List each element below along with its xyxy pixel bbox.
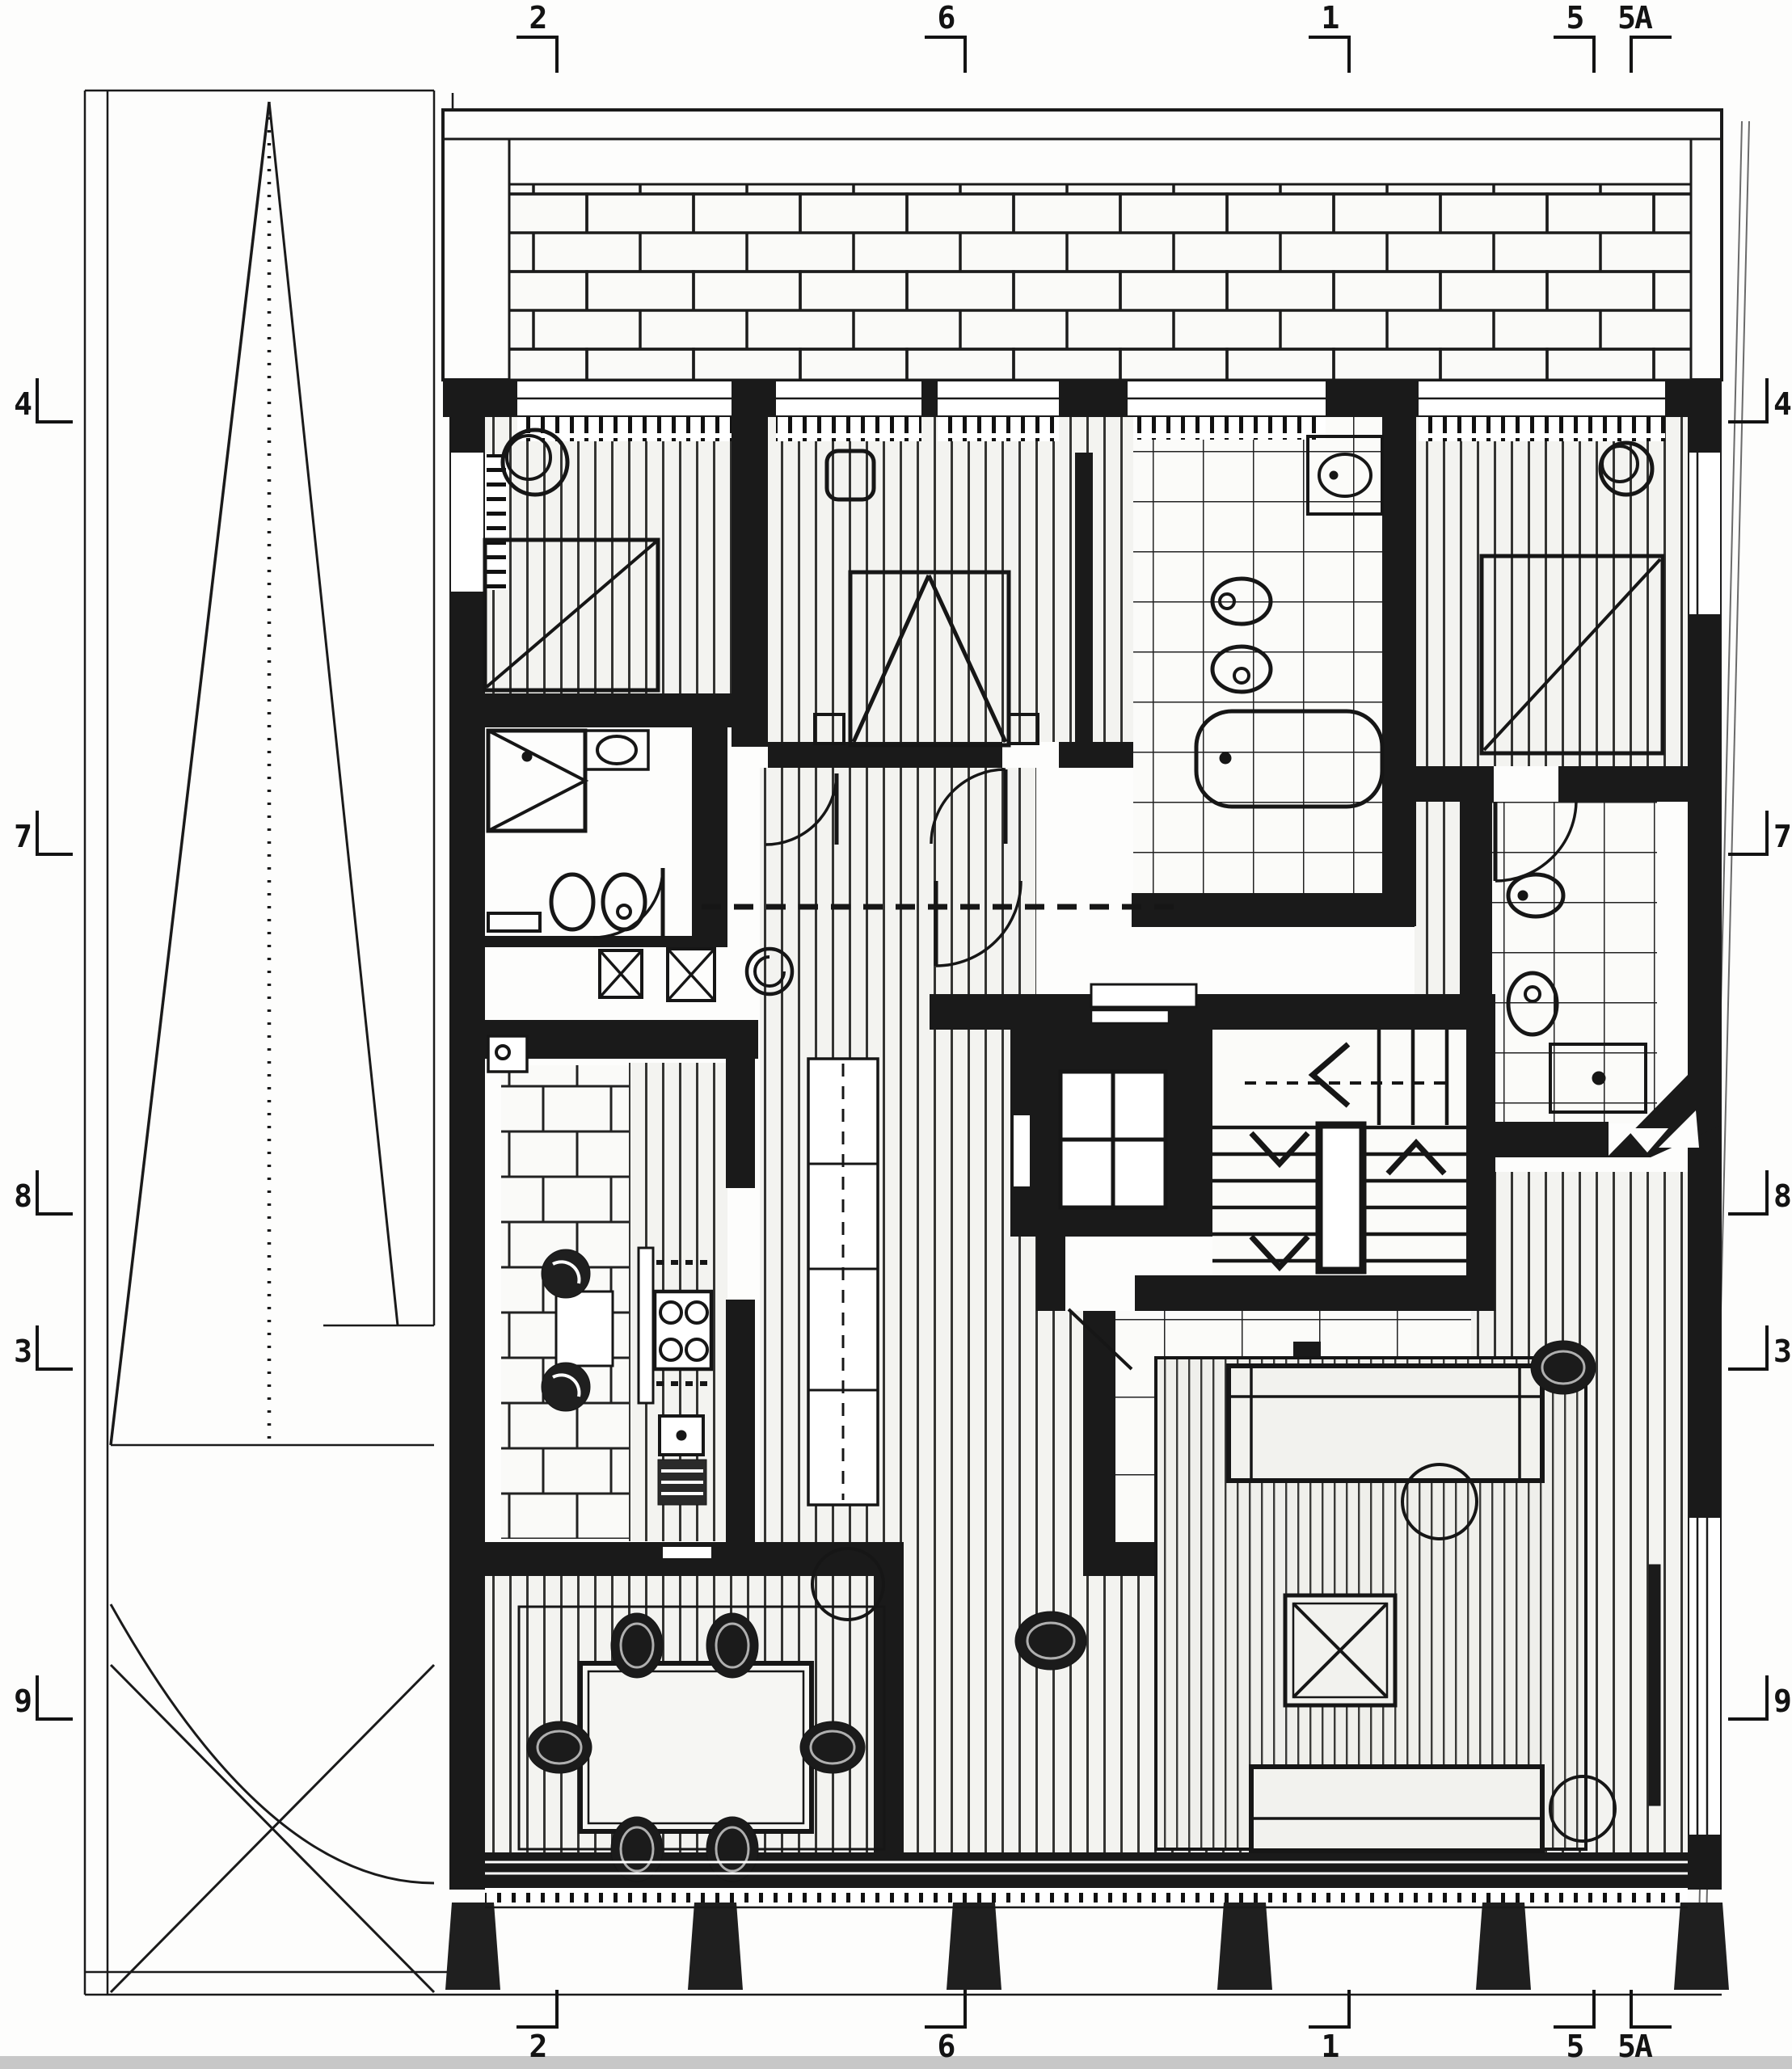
dining-table-icon — [580, 1663, 812, 1831]
grid-marker-bottom-2: 2 — [497, 1990, 578, 2064]
tree-boundary-icon — [111, 102, 398, 1445]
sofa-icon — [1229, 1366, 1542, 1481]
floor-plan-drawing — [0, 0, 1792, 2069]
grid-marker-bottom-6: 6 — [905, 1990, 986, 2064]
sofa-icon — [1251, 1767, 1542, 1851]
kitchen-sink-icon — [542, 1363, 590, 1411]
floor-plan-sheet: 2 6 1 5 5A 2 6 1 5 5A 4 7 8 3 9 4 7 8 3 … — [0, 0, 1792, 2069]
driveway-arc — [111, 1604, 434, 1992]
pouf-icon — [1531, 1341, 1596, 1394]
grid-marker-top-5A: 5A — [1594, 0, 1675, 36]
washbasin-icon — [597, 736, 636, 764]
brick-paving-icon — [509, 184, 1691, 380]
terrace — [443, 110, 1722, 380]
toilet-icon — [551, 874, 593, 929]
facade-pier-icon — [445, 1903, 1729, 1990]
grid-marker-top-6: 6 — [905, 0, 986, 36]
bathroom-2-tiles — [1491, 800, 1657, 1123]
scan-edge-strip — [0, 2056, 1792, 2069]
grid-marker-top-1: 1 — [1289, 0, 1370, 36]
radiator-icon — [1649, 1565, 1660, 1806]
balcony-sill — [485, 1888, 1688, 1903]
bathroom-3 — [488, 731, 663, 938]
grid-marker-bottom-1: 1 — [1289, 1990, 1370, 2064]
grid-marker-top-2: 2 — [497, 0, 578, 36]
bathroom-1-tiles — [1133, 417, 1382, 894]
pouf-icon — [1015, 1612, 1086, 1670]
grid-marker-bottom-5A: 5A — [1594, 1990, 1675, 2064]
kitchen-sink-icon — [542, 1249, 590, 1298]
shower-icon — [488, 731, 585, 831]
